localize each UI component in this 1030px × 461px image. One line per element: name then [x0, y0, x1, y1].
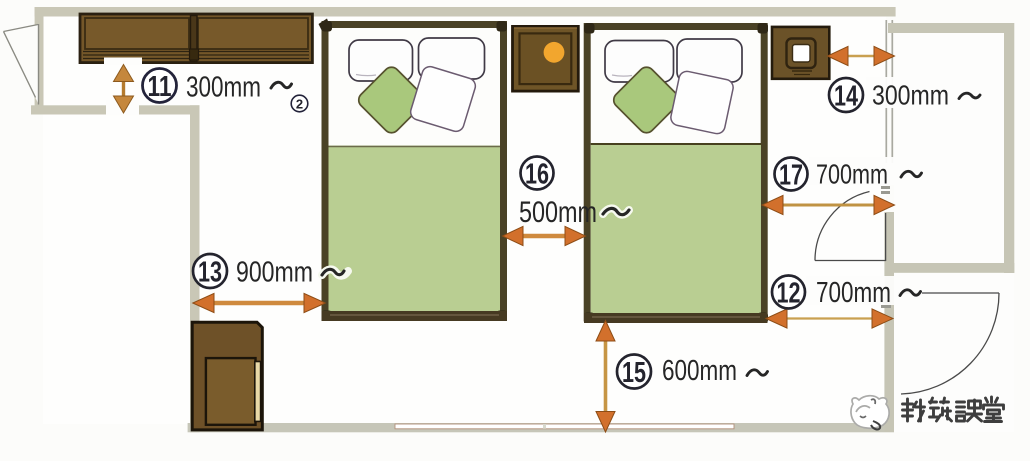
- svg-text:17: 17: [779, 160, 803, 192]
- svg-text:700mm: 700mm: [816, 277, 891, 309]
- svg-text:2: 2: [296, 97, 303, 112]
- svg-text:900mm: 900mm: [236, 257, 313, 289]
- svg-text:16: 16: [525, 159, 549, 191]
- svg-text:300mm: 300mm: [186, 72, 261, 104]
- svg-text:11: 11: [148, 71, 172, 103]
- svg-text:15: 15: [622, 357, 646, 389]
- svg-text:12: 12: [777, 278, 801, 310]
- svg-text:14: 14: [834, 81, 858, 113]
- svg-text:700mm: 700mm: [816, 159, 888, 190]
- svg-text:13: 13: [198, 257, 222, 289]
- svg-text:300mm: 300mm: [872, 80, 949, 111]
- svg-text:500mm: 500mm: [519, 196, 597, 229]
- svg-text:600mm: 600mm: [662, 355, 737, 387]
